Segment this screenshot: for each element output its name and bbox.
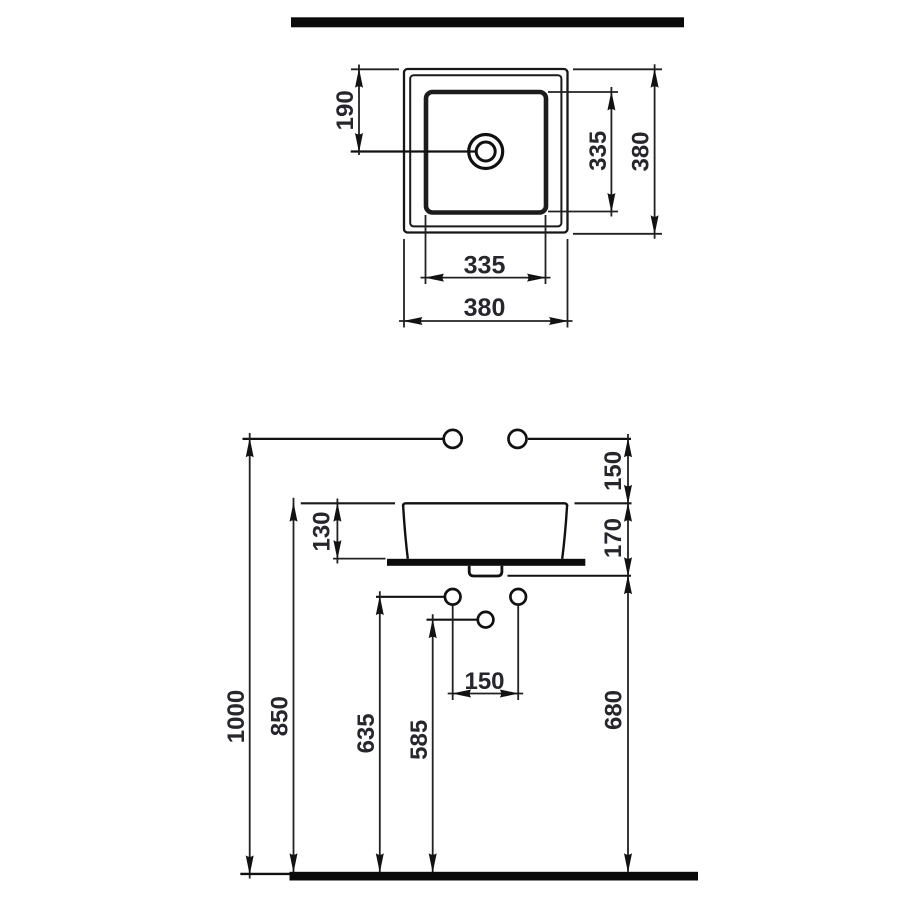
svg-text:635: 635 [353, 713, 380, 753]
svg-text:680: 680 [601, 690, 628, 730]
svg-text:150: 150 [600, 451, 627, 491]
svg-text:335: 335 [464, 252, 506, 280]
svg-text:850: 850 [266, 696, 293, 736]
svg-text:130: 130 [309, 511, 336, 551]
svg-text:380: 380 [464, 294, 506, 322]
svg-text:170: 170 [600, 518, 627, 558]
svg-text:585: 585 [406, 720, 433, 760]
svg-text:150: 150 [464, 668, 504, 695]
svg-text:1000: 1000 [223, 690, 250, 743]
svg-text:335: 335 [585, 131, 612, 171]
svg-text:380: 380 [628, 131, 655, 171]
svg-text:190: 190 [332, 90, 359, 130]
